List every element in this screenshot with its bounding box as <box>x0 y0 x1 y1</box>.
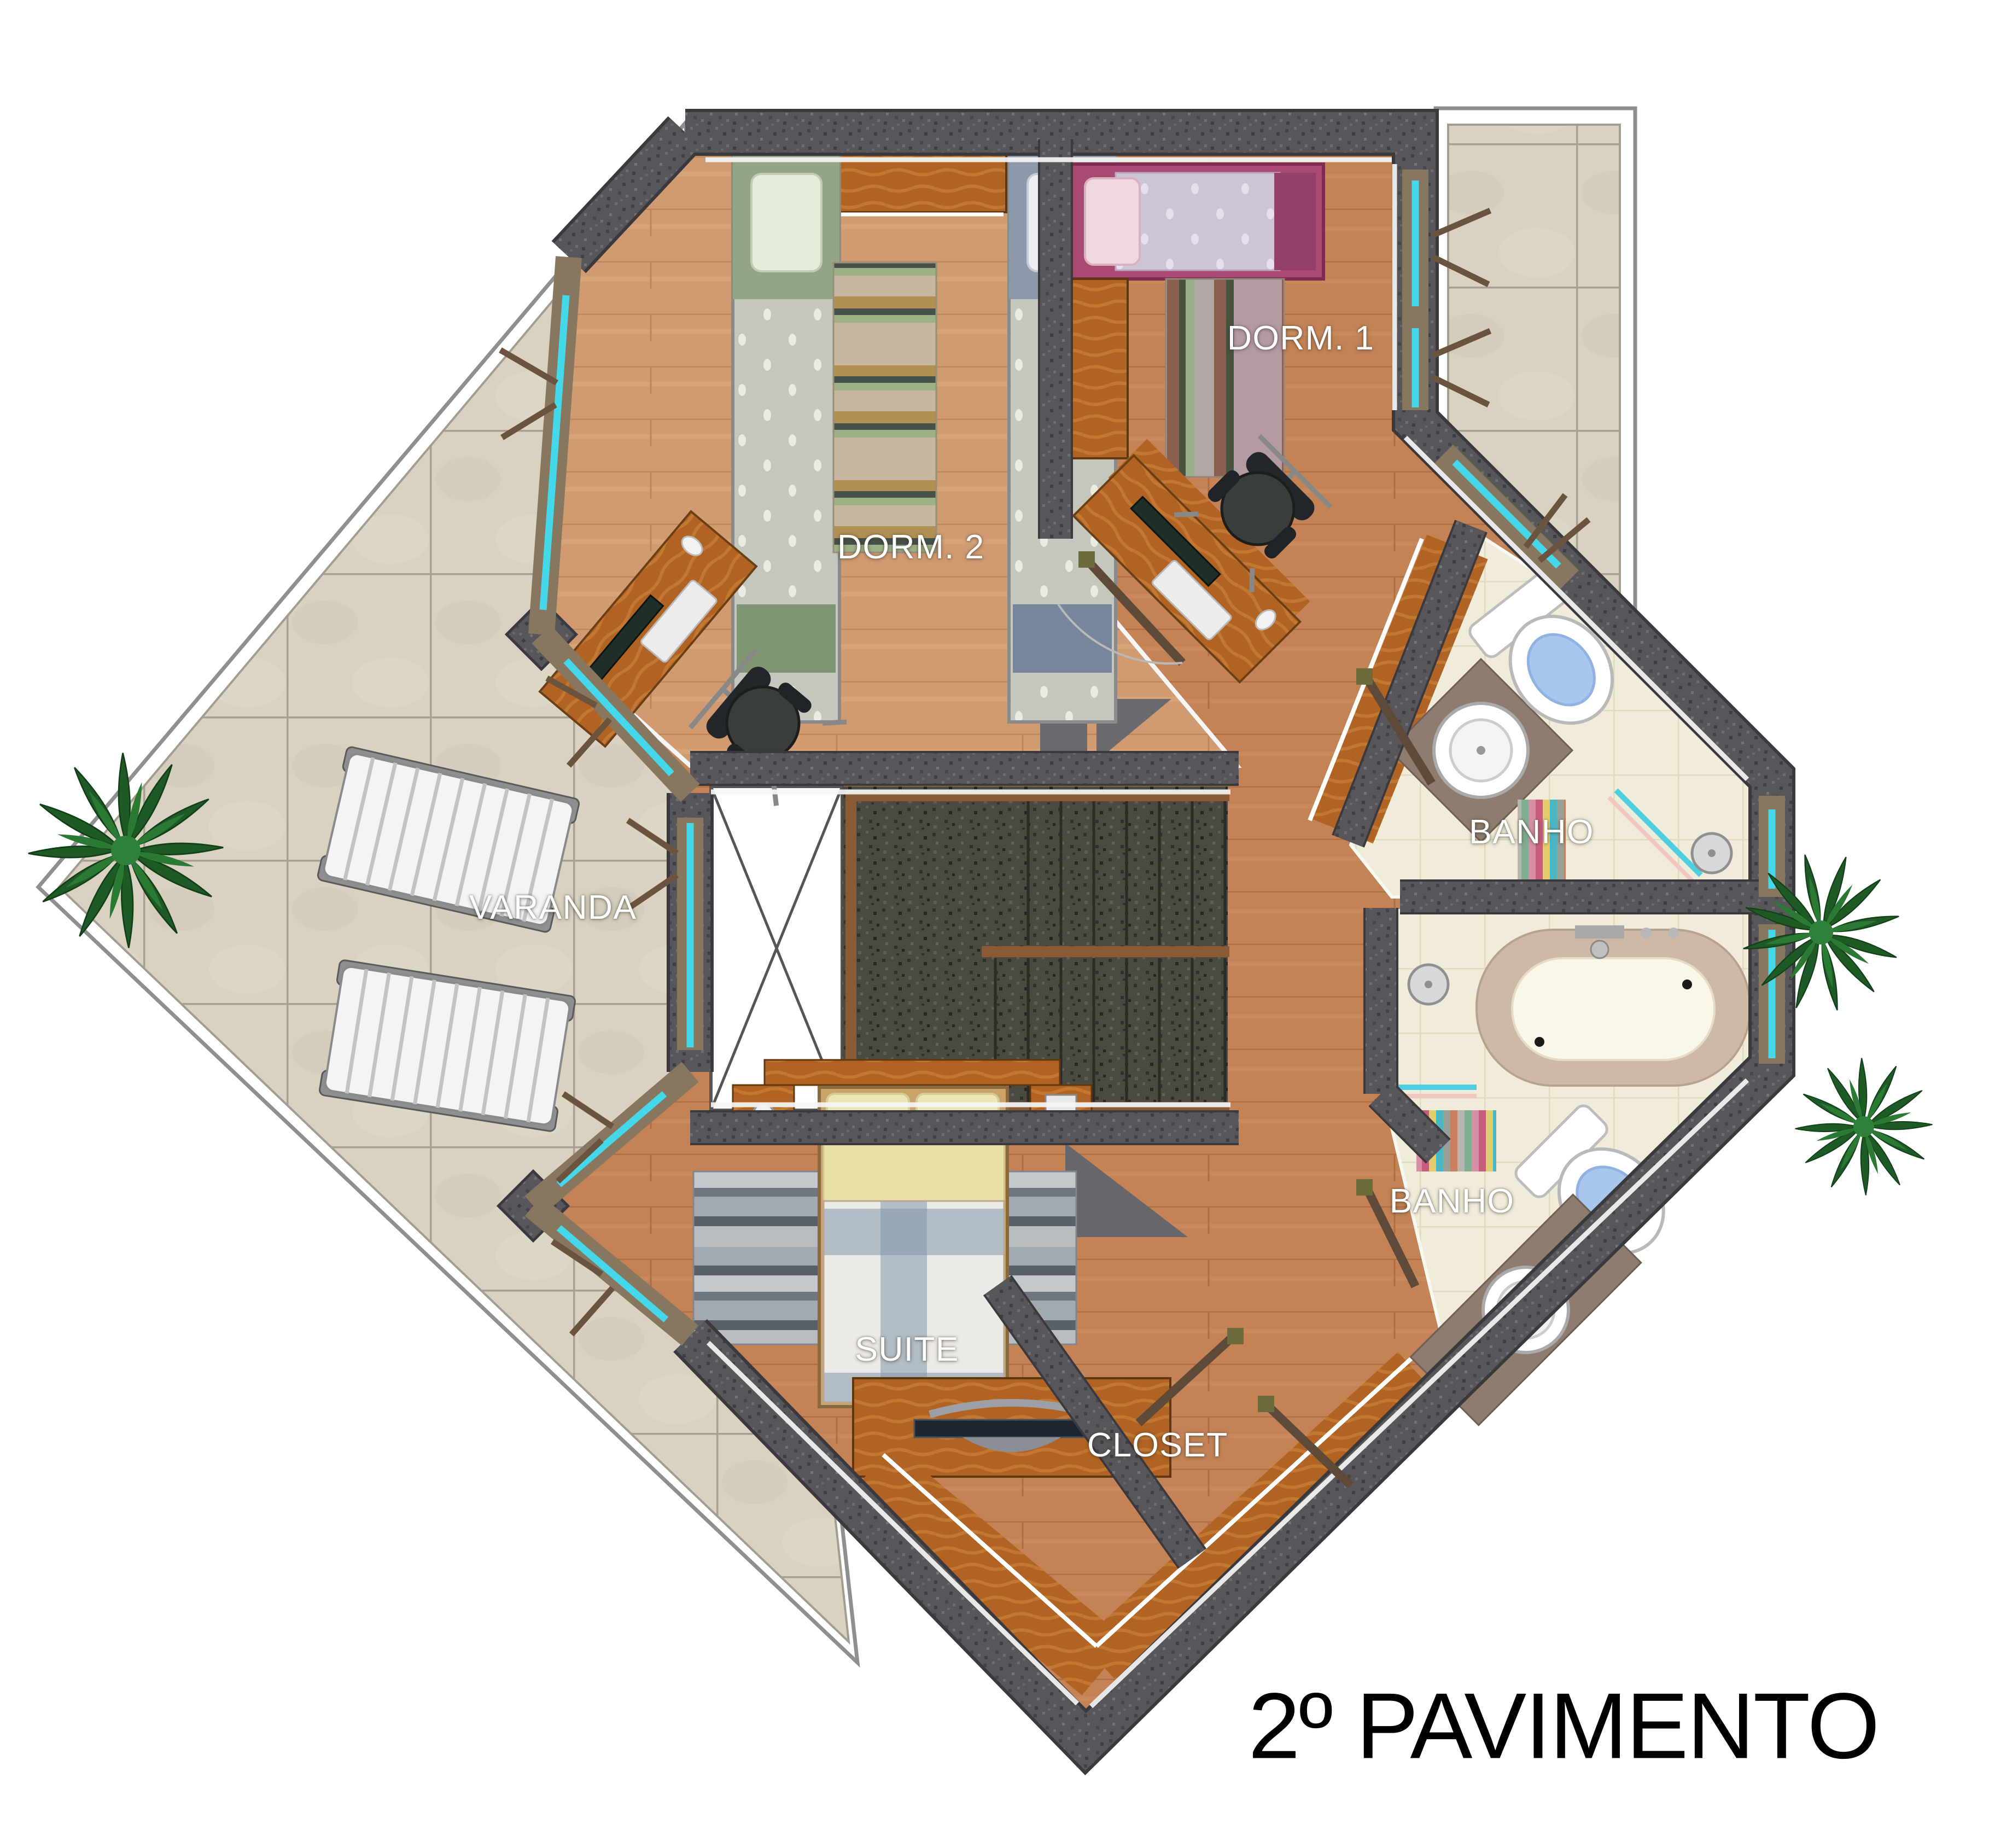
dorm1-bed <box>1071 164 1323 279</box>
room-label-dorm1: DORM. 1 <box>1227 318 1374 358</box>
dorm2-rug <box>833 263 936 552</box>
room-label-dorm2: DORM. 2 <box>837 527 984 567</box>
dorm1-rug <box>1166 279 1284 477</box>
dorm2-wardrobe <box>820 147 1006 212</box>
banho1-shower-head <box>1692 833 1731 873</box>
bathtub <box>1477 925 1750 1086</box>
floor-plan-page: DORM. 1 DORM. 2 VARANDA BANHO BANHO SUIT… <box>0 0 1989 1848</box>
single-bed-green <box>733 154 839 722</box>
room-label-banho1: BANHO <box>1469 812 1594 852</box>
room-label-banho2: BANHO <box>1390 1181 1515 1221</box>
floor-plan-graphic <box>0 0 1989 1848</box>
suite-headboard <box>765 1060 1060 1085</box>
room-label-suite: SUITE <box>855 1330 959 1369</box>
room-label-varanda: VARANDA <box>469 888 637 927</box>
room-label-closet: CLOSET <box>1087 1425 1228 1465</box>
plant-right-lower <box>1770 1033 1958 1221</box>
dorm1-wardrobe <box>1071 279 1128 458</box>
plan-title: 2º PAVIMENTO <box>1248 1672 1878 1780</box>
